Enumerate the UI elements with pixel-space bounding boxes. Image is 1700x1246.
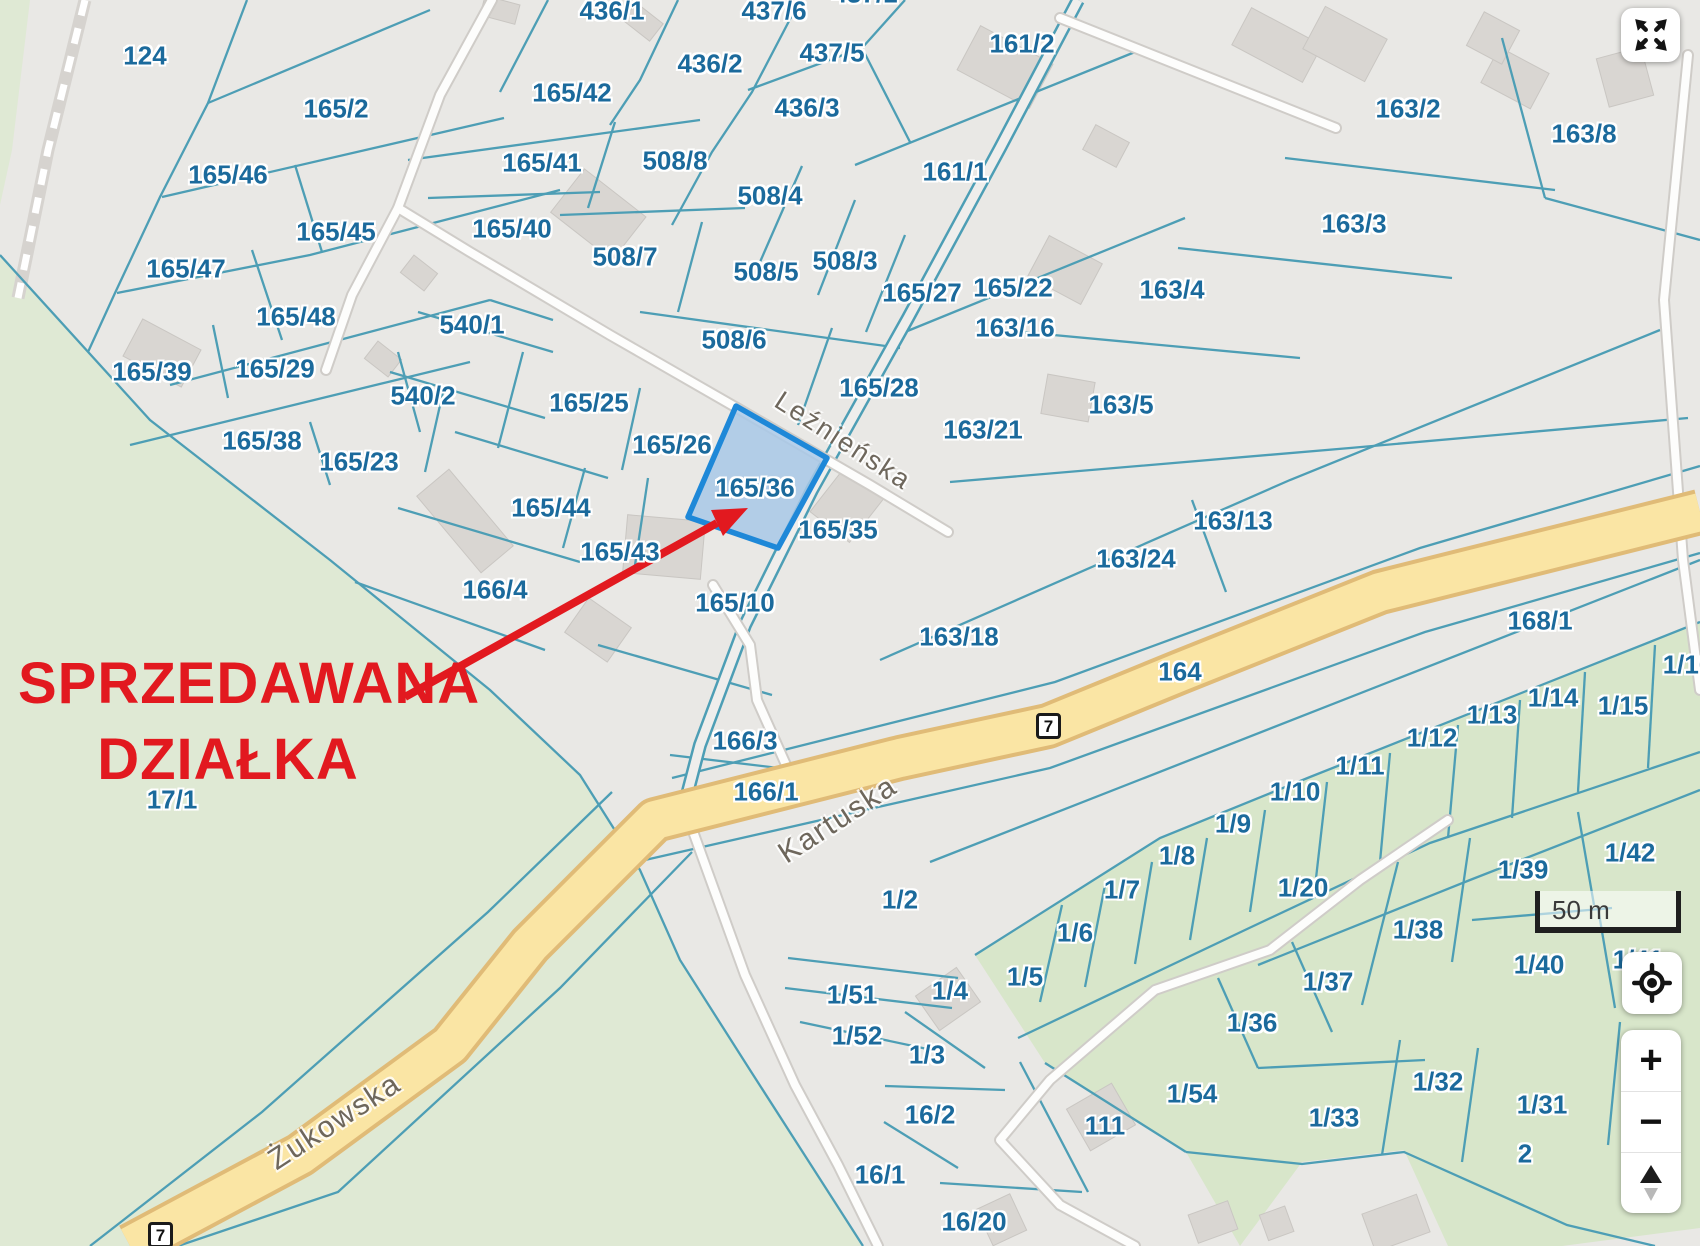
zoom-panel: + − — [1621, 1030, 1681, 1213]
compass-button[interactable] — [1621, 1152, 1681, 1213]
parcel-label: 168/1 — [1507, 606, 1572, 637]
parcel-label: 1/15 — [1598, 691, 1649, 722]
parcel-label: 508/7 — [592, 242, 657, 273]
parcel-label: 1/14 — [1528, 683, 1579, 714]
parcel-label: 111 — [1085, 1111, 1126, 1142]
parcel-label: 165/29 — [235, 354, 315, 385]
parcel-label: 16/2 — [905, 1100, 956, 1131]
parcel-label: 165/45 — [296, 217, 376, 248]
scale-bar-label: 50 m — [1552, 895, 1676, 926]
parcel-label: 1/9 — [1215, 809, 1251, 840]
parcel-label: 165/26 — [632, 430, 712, 461]
parcel-label: 1/3 — [909, 1040, 945, 1071]
sale-annotation: SPRZEDAWANA DZIAŁKA — [18, 646, 438, 798]
parcel-label: 165/42 — [532, 78, 612, 109]
sale-annotation-line2: DZIAŁKA — [18, 722, 438, 798]
parcel-label: 16/1 — [855, 1160, 906, 1191]
parcel-label: 1/36 — [1227, 1008, 1278, 1039]
parcel-label: 163/18 — [919, 622, 999, 653]
parcel-label: 1/12 — [1407, 723, 1458, 754]
north-arrow-icon — [1634, 1161, 1668, 1205]
road-number-badge: 7 — [1036, 713, 1061, 739]
parcel-label: 165/36 — [715, 473, 795, 504]
parcel-label: 1/16 — [1663, 650, 1700, 681]
sale-annotation-line1: SPRZEDAWANA — [18, 646, 438, 722]
gps-target-icon — [1632, 963, 1672, 1003]
parcel-label: 1/32 — [1413, 1067, 1464, 1098]
parcel-label: 163/16 — [975, 313, 1055, 344]
parcel-label: 508/5 — [733, 257, 798, 288]
parcel-label: 1/5 — [1007, 962, 1043, 993]
parcel-label: 163/2 — [1375, 94, 1440, 125]
parcel-label: 165/44 — [511, 493, 591, 524]
parcel-label: 2 — [1518, 1139, 1532, 1170]
parcel-label: 437/6 — [741, 0, 806, 27]
parcel-label: 1/7 — [1104, 875, 1140, 906]
parcel-label: 166/4 — [462, 575, 527, 606]
parcel-label: 165/2 — [303, 94, 368, 125]
parcel-label: 163/24 — [1096, 544, 1176, 575]
parcel-label: 165/46 — [188, 160, 268, 191]
parcel-label: 165/40 — [472, 214, 552, 245]
parcel-label: 165/27 — [882, 278, 962, 309]
parcel-label: 165/10 — [695, 588, 775, 619]
parcel-label: 508/6 — [701, 325, 766, 356]
parcel-label: 508/4 — [737, 181, 802, 212]
parcel-label: 165/28 — [839, 373, 919, 404]
parcel-label: 161/2 — [989, 29, 1054, 60]
parcel-label: 163/21 — [943, 415, 1023, 446]
parcel-label: 508/3 — [812, 246, 877, 277]
parcel-label: 1/39 — [1498, 855, 1549, 886]
parcel-label: 165/41 — [502, 148, 582, 179]
parcel-label: 166/3 — [712, 726, 777, 757]
parcel-label: 1/33 — [1309, 1103, 1360, 1134]
road-number-badge: 7 — [148, 1222, 173, 1246]
parcel-label: 436/3 — [774, 93, 839, 124]
parcel-label: 1/51 — [827, 980, 878, 1011]
parcel-label: 166/1 — [733, 777, 798, 808]
zoom-in-label: + — [1639, 1038, 1662, 1083]
parcel-label: 1/13 — [1467, 700, 1518, 731]
parcel-label: 165/23 — [319, 447, 399, 478]
parcel-label: 165/43 — [580, 537, 660, 568]
parcel-label: 1/4 — [932, 976, 968, 1007]
scale-bar: 50 m — [1535, 891, 1681, 933]
parcel-label: 1/54 — [1167, 1079, 1218, 1110]
parcel-label: 1/37 — [1303, 967, 1354, 998]
parcel-label: 163/4 — [1139, 275, 1204, 306]
parcel-label: 1/38 — [1393, 915, 1444, 946]
zoom-out-label: − — [1639, 1100, 1662, 1145]
parcel-label: 164 — [1158, 657, 1201, 688]
locate-button[interactable] — [1622, 952, 1682, 1014]
parcel-label: 1/8 — [1159, 841, 1195, 872]
parcel-label: 1/31 — [1517, 1090, 1568, 1121]
parcel-label: 16/20 — [941, 1207, 1006, 1238]
parcel-label: 1/40 — [1514, 950, 1565, 981]
parcel-label: 163/3 — [1321, 209, 1386, 240]
parcel-label: 436/2 — [677, 49, 742, 80]
parcel-label: 165/47 — [146, 254, 226, 285]
parcel-label: 436/1 — [579, 0, 644, 27]
parcel-label: 163/13 — [1193, 506, 1273, 537]
parcel-label: 1/20 — [1278, 873, 1329, 904]
footpath — [18, 0, 85, 298]
parcel-label: 1/10 — [1270, 777, 1321, 808]
parcel-label: 165/38 — [222, 426, 302, 457]
parcel-label: 508/8 — [642, 146, 707, 177]
parcel-label: 165/22 — [973, 273, 1053, 304]
parcel-label: 124 — [123, 41, 166, 72]
parcel-label: 437/5 — [799, 38, 864, 69]
zoom-in-button[interactable]: + — [1621, 1030, 1681, 1091]
parcel-label: 163/5 — [1088, 390, 1153, 421]
parcel-label: 540/1 — [439, 310, 504, 341]
parcel-label: 161/1 — [922, 157, 987, 188]
parcel-label: 540/2 — [390, 381, 455, 412]
map-screenshot: 124165/2165/46165/45165/47165/48165/3916… — [0, 0, 1700, 1246]
expand-arrows-icon — [1632, 16, 1670, 54]
parcel-label: 165/35 — [798, 515, 878, 546]
parcel-label: 1/2 — [882, 885, 918, 916]
parcel-label: 1/52 — [832, 1021, 883, 1052]
fullscreen-button[interactable] — [1621, 8, 1680, 62]
parcel-label: 437/1 — [832, 0, 897, 10]
parcel-label: 165/39 — [112, 357, 192, 388]
parcel-label: 1/42 — [1605, 838, 1656, 869]
parcel-label: 1/6 — [1057, 918, 1093, 949]
parcel-label: 1/11 — [1335, 751, 1384, 782]
parcel-label: 163/8 — [1551, 119, 1616, 150]
parcel-label: 165/48 — [256, 302, 336, 333]
parcel-label: 165/25 — [549, 388, 629, 419]
zoom-out-button[interactable]: − — [1621, 1091, 1681, 1152]
